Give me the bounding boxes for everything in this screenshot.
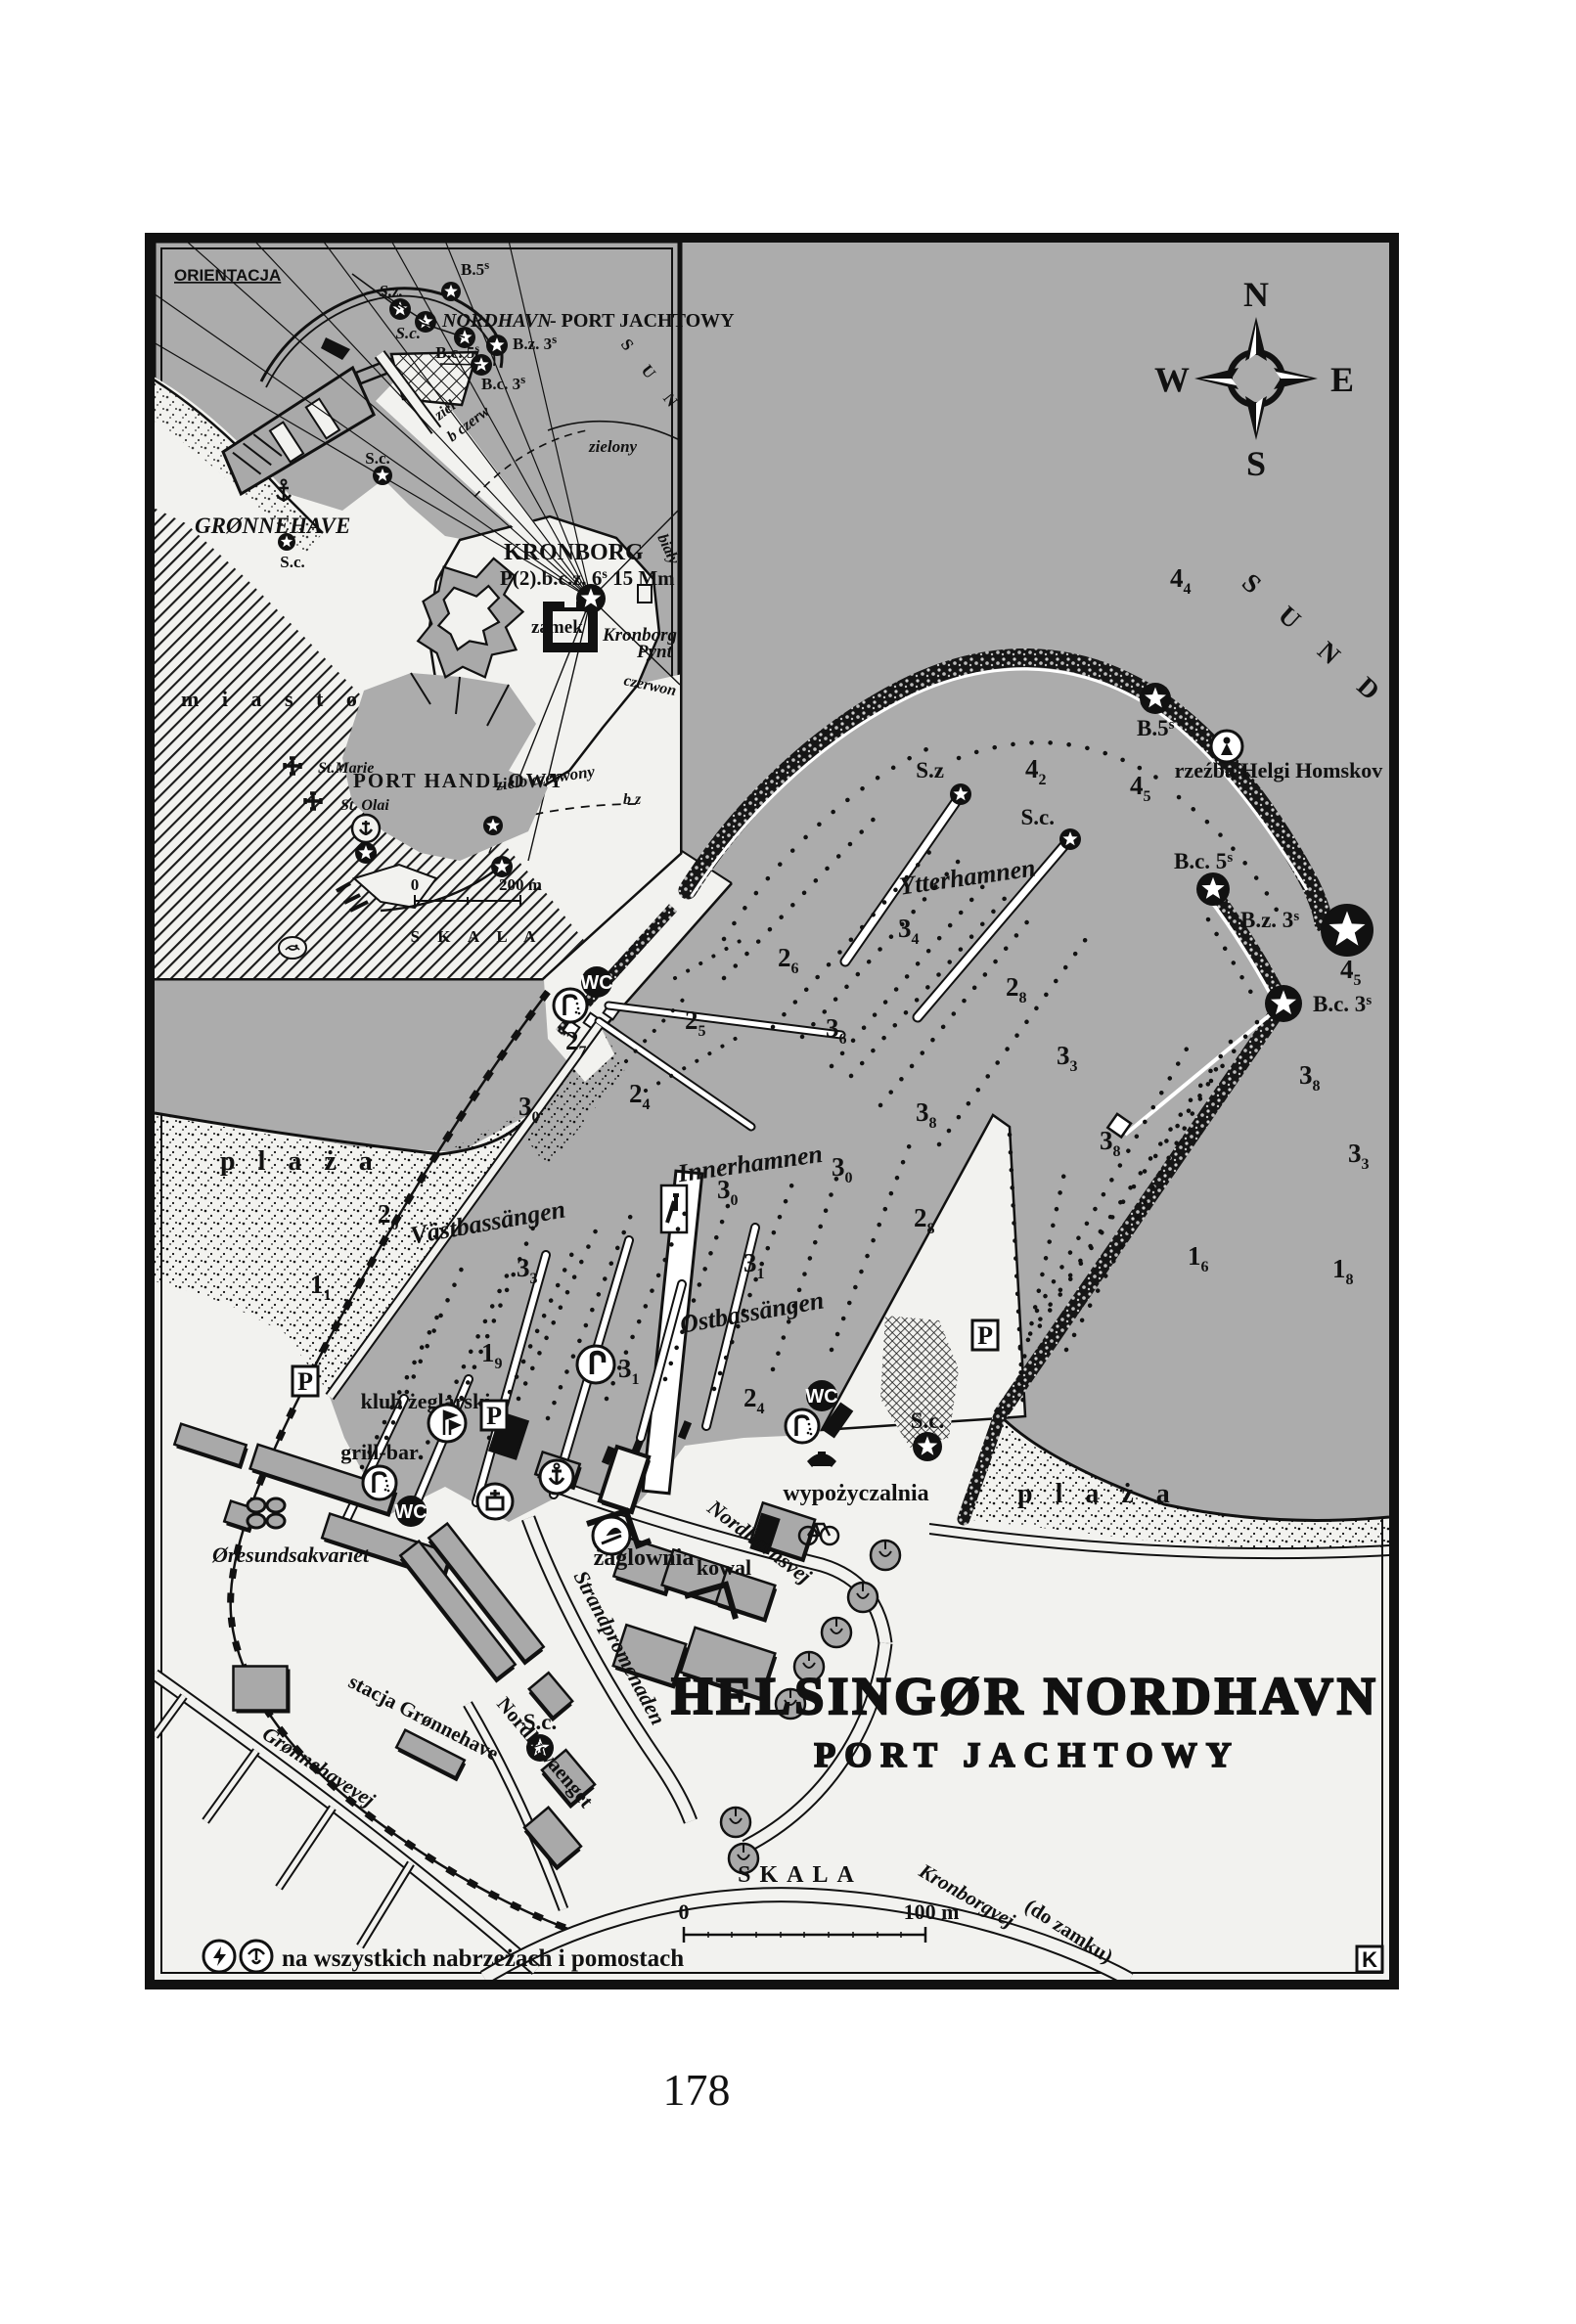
svg-text:0: 0	[679, 1899, 690, 1924]
svg-text:GRØNNEHAVE: GRØNNEHAVE	[195, 514, 350, 538]
svg-text:S.c.: S.c.	[911, 1408, 945, 1433]
svg-text:Øresundsakvariet: Øresundsakvariet	[211, 1542, 370, 1567]
svg-text:St. Olai: St. Olai	[340, 797, 389, 814]
svg-text:m i a s t o: m i a s t o	[181, 687, 366, 711]
svg-text:SKALA: SKALA	[738, 1862, 863, 1888]
svg-text:S K A L A: S K A L A	[411, 927, 543, 946]
svg-text:S.z.: S.z.	[379, 282, 403, 300]
svg-text:N: N	[1243, 275, 1269, 314]
svg-text:S.c.: S.c.	[365, 449, 390, 468]
svg-text:p l a ż a: p l a ż a	[220, 1146, 381, 1177]
svg-text:PORT JACHTOWY: PORT JACHTOWY	[814, 1735, 1239, 1774]
svg-text:p l a ż a: p l a ż a	[1017, 1479, 1178, 1509]
svg-text:kowal: kowal	[697, 1555, 751, 1580]
svg-text:W: W	[1154, 360, 1190, 399]
svg-text:wypożyczalnia: wypożyczalnia	[783, 1481, 928, 1506]
svg-text:KRONBORG: KRONBORG	[504, 540, 644, 565]
svg-text:200 m: 200 m	[499, 875, 542, 894]
svg-text:b z: b z	[623, 791, 642, 808]
svg-text:grill-bar: grill-bar	[340, 1440, 419, 1464]
svg-text:rzeźba Helgi Homskov: rzeźba Helgi Homskov	[1175, 758, 1383, 782]
svg-text:B.c. 3s: B.c. 3s	[1313, 992, 1372, 1016]
svg-text:WC: WC	[805, 1386, 837, 1408]
svg-text:B.c. 3s: B.c. 3s	[481, 372, 525, 393]
svg-text:B.c. 5s: B.c. 5s	[1174, 849, 1233, 873]
svg-text:WC: WC	[580, 972, 612, 994]
svg-text:St.Marie: St.Marie	[318, 760, 374, 777]
svg-text:ORIENTACJA: ORIENTACJA	[174, 266, 281, 285]
svg-text:E: E	[1330, 360, 1354, 399]
svg-text:na wszystkich nabrzeżach i pom: na wszystkich nabrzeżach i pomostach	[282, 1945, 684, 1972]
svg-text:S.z: S.z	[916, 758, 944, 782]
svg-text:K: K	[1362, 1947, 1377, 1972]
svg-text:HELSINGØR NORDHAVN: HELSINGØR NORDHAVN	[671, 1667, 1379, 1725]
svg-text:S.c.: S.c.	[1021, 805, 1056, 829]
svg-text:0: 0	[411, 875, 420, 894]
svg-text:zamek: zamek	[531, 617, 583, 638]
svg-text:100 m: 100 m	[904, 1899, 960, 1924]
svg-text:B.c. 5s: B.c. 5s	[435, 341, 479, 362]
svg-text:P: P	[486, 1402, 502, 1430]
svg-text:S.c.: S.c.	[280, 553, 305, 571]
svg-text:S: S	[1246, 444, 1266, 483]
svg-text:P: P	[977, 1321, 993, 1350]
svg-text:B.z. 3s: B.z. 3s	[513, 332, 557, 353]
svg-text:NORDHAVN: NORDHAVN	[441, 310, 553, 332]
svg-text:S.c.: S.c.	[396, 324, 422, 342]
svg-text:B.z. 3s: B.z. 3s	[1240, 908, 1299, 932]
svg-text:P: P	[297, 1367, 313, 1396]
svg-text:P(2).b.c.z. 6s 15 Mm: P(2).b.c.z. 6s 15 Mm	[500, 566, 675, 590]
svg-text:WC: WC	[394, 1501, 427, 1523]
svg-text:178: 178	[663, 2065, 731, 2115]
svg-text:Pynt: Pynt	[636, 642, 673, 662]
svg-text:- PORT JACHTOWY: - PORT JACHTOWY	[550, 310, 735, 332]
svg-text:klub żeglarski: klub żeglarski	[361, 1389, 491, 1413]
svg-text:zielony: zielony	[588, 437, 638, 456]
